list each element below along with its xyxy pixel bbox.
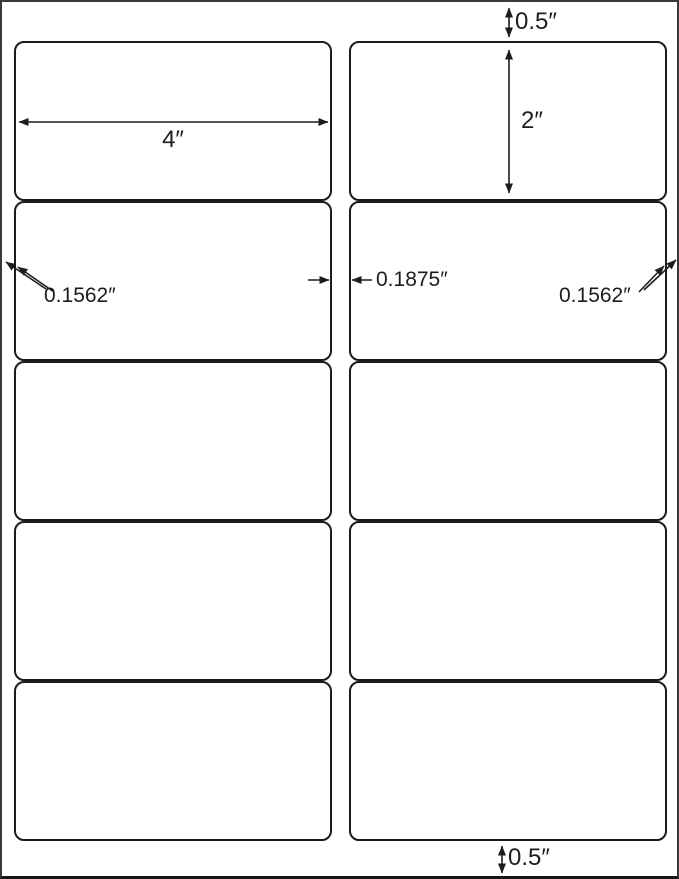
label-cell <box>349 681 667 841</box>
label-cell <box>349 361 667 521</box>
label-cell <box>14 201 332 361</box>
bottom-margin-dimension: 0.5″ <box>508 846 550 870</box>
top-margin-dimension: 0.5″ <box>515 10 557 34</box>
left-margin-dimension: 0.1562″ <box>44 285 116 306</box>
label-grid <box>14 41 667 841</box>
label-cell <box>349 41 667 201</box>
label-cell <box>14 521 332 681</box>
label-cell <box>14 41 332 201</box>
label-height-dimension: 2″ <box>521 109 543 133</box>
label-cell <box>14 361 332 521</box>
right-margin-dimension: 0.1562″ <box>559 285 631 306</box>
label-cell <box>14 681 332 841</box>
label-sheet: 0.5″ 4″ 2″ 0.1562″ 0.1875″ 0.1562″ 0.5″ <box>0 0 679 879</box>
column-gap-dimension: 0.1875″ <box>376 269 448 290</box>
label-width-dimension: 4″ <box>142 128 204 152</box>
label-cell <box>349 521 667 681</box>
